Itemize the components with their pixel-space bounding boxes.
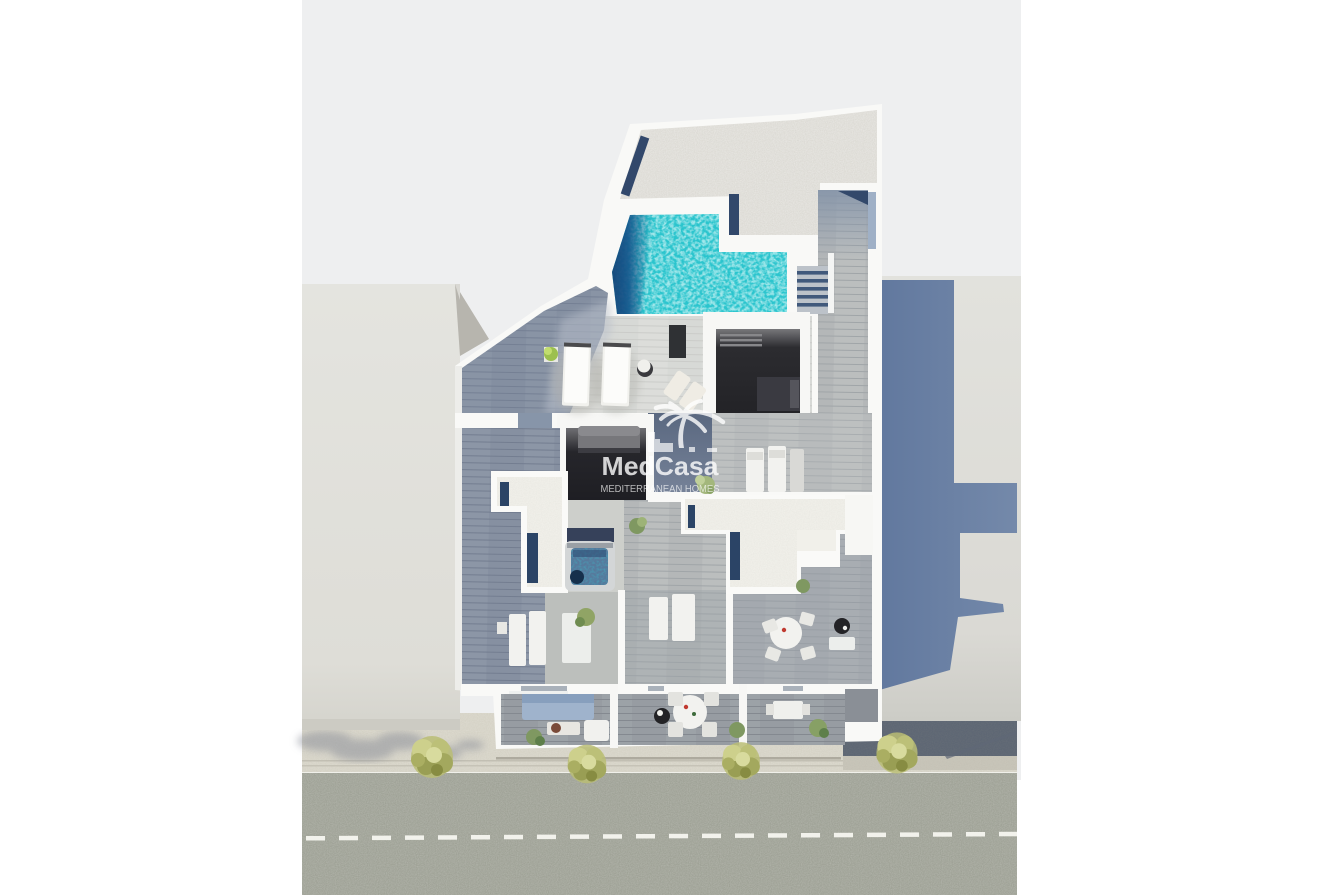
svg-text:MedCasa: MedCasa [602, 451, 720, 481]
svg-text:MEDITERRANEAN HOMES: MEDITERRANEAN HOMES [601, 483, 720, 495]
